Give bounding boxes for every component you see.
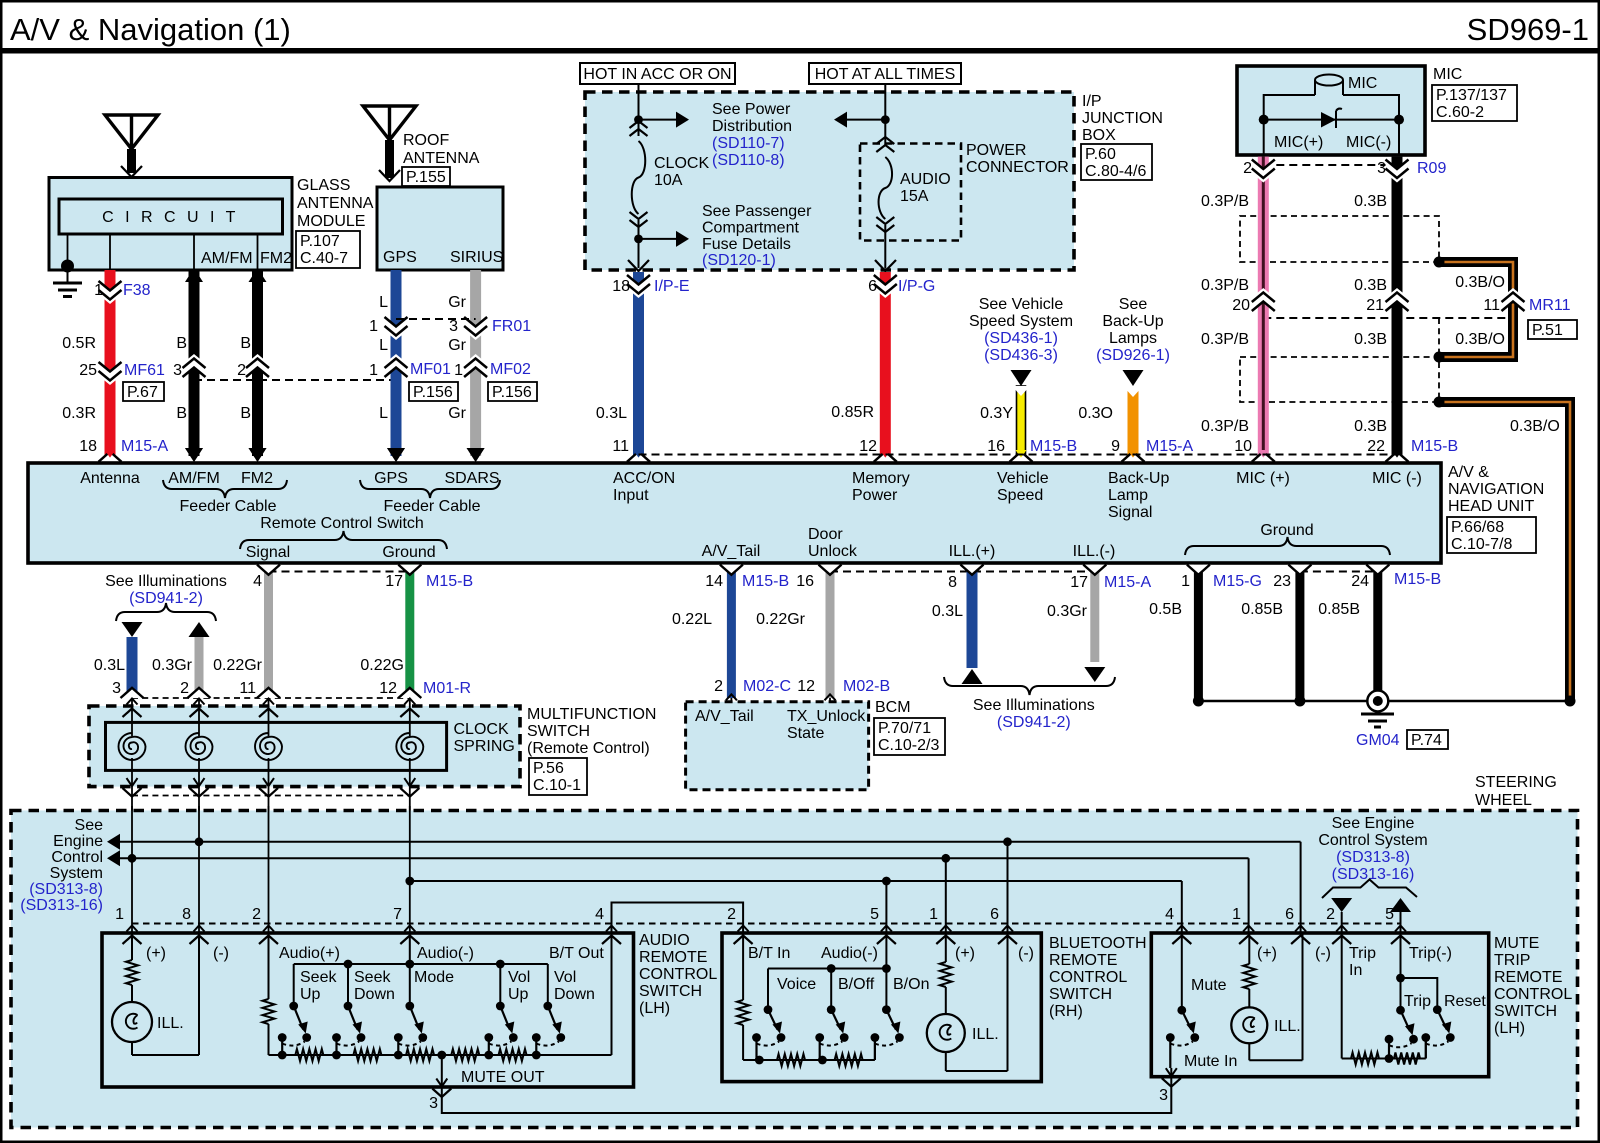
- svg-text:1: 1: [94, 282, 103, 299]
- svg-text:See Passenger: See Passenger: [702, 203, 812, 220]
- svg-text:(-): (-): [1315, 945, 1331, 962]
- svg-text:0.3L: 0.3L: [596, 405, 627, 422]
- svg-text:See Illuminations: See Illuminations: [105, 573, 227, 590]
- svg-text:0.3L: 0.3L: [932, 603, 963, 620]
- svg-text:See: See: [75, 817, 104, 834]
- svg-text:P.51: P.51: [1532, 322, 1563, 339]
- svg-text:Remote Control Switch: Remote Control Switch: [260, 515, 424, 532]
- svg-text:MUTE: MUTE: [1494, 935, 1539, 952]
- svg-text:0.5B: 0.5B: [1149, 601, 1182, 618]
- svg-text:8: 8: [948, 574, 957, 591]
- svg-text:3: 3: [173, 362, 182, 379]
- svg-text:ILL.: ILL.: [1274, 1018, 1301, 1035]
- svg-text:Down: Down: [354, 986, 395, 1003]
- svg-text:Lamp: Lamp: [1108, 487, 1148, 504]
- svg-text:0.3B: 0.3B: [1354, 277, 1387, 294]
- svg-text:11: 11: [1483, 297, 1500, 314]
- svg-text:MODULE: MODULE: [297, 213, 365, 230]
- svg-text:(+): (+): [955, 945, 975, 962]
- svg-text:P.155: P.155: [406, 169, 446, 186]
- svg-text:0.3P/B: 0.3P/B: [1201, 331, 1249, 348]
- svg-text:M01-R: M01-R: [423, 680, 471, 697]
- svg-text:P.67: P.67: [127, 384, 158, 401]
- svg-text:GLASS: GLASS: [297, 177, 350, 194]
- svg-text:3: 3: [1377, 160, 1386, 177]
- svg-text:Feeder Cable: Feeder Cable: [384, 498, 481, 515]
- svg-text:Trip(-): Trip(-): [1409, 945, 1452, 962]
- svg-text:0.3Gr: 0.3Gr: [152, 657, 193, 674]
- svg-text:0.3P/B: 0.3P/B: [1201, 418, 1249, 435]
- svg-text:2: 2: [237, 362, 246, 379]
- svg-text:AUDIO: AUDIO: [900, 171, 951, 188]
- svg-text:C.10-7/8: C.10-7/8: [1451, 536, 1512, 553]
- svg-text:6: 6: [990, 906, 999, 923]
- svg-text:Mute: Mute: [1191, 977, 1227, 994]
- svg-text:0.3B: 0.3B: [1354, 331, 1387, 348]
- svg-text:FM2: FM2: [241, 470, 273, 487]
- svg-text:CLOCK: CLOCK: [454, 721, 509, 738]
- svg-text:0.22Gr: 0.22Gr: [756, 611, 806, 628]
- svg-text:B/Off: B/Off: [838, 976, 875, 993]
- svg-text:SWITCH: SWITCH: [1049, 986, 1112, 1003]
- svg-text:0.3B/O: 0.3B/O: [1455, 331, 1505, 348]
- svg-text:SIRIUS: SIRIUS: [450, 249, 503, 266]
- svg-text:BLUETOOTH: BLUETOOTH: [1049, 935, 1147, 952]
- svg-text:1: 1: [454, 362, 463, 379]
- svg-text:Gr: Gr: [448, 294, 466, 311]
- svg-text:Fuse Details: Fuse Details: [702, 236, 791, 253]
- svg-text:Speed System: Speed System: [969, 313, 1073, 330]
- svg-text:CONTROL: CONTROL: [1494, 986, 1572, 1003]
- svg-text:Vol: Vol: [508, 969, 530, 986]
- svg-text:SWITCH: SWITCH: [527, 723, 590, 740]
- svg-text:WHEEL: WHEEL: [1475, 792, 1532, 809]
- svg-text:25: 25: [79, 362, 97, 379]
- svg-text:AUDIO: AUDIO: [639, 932, 690, 949]
- svg-text:1: 1: [929, 906, 938, 923]
- svg-text:(SD120-1): (SD120-1): [702, 252, 776, 269]
- svg-text:M15-A: M15-A: [121, 438, 168, 455]
- svg-text:7: 7: [393, 906, 402, 923]
- svg-text:23: 23: [1273, 573, 1291, 590]
- svg-text:Reset: Reset: [1444, 993, 1486, 1010]
- svg-text:FM2: FM2: [260, 250, 292, 267]
- svg-text:ILL.: ILL.: [972, 1026, 999, 1043]
- svg-text:BCM: BCM: [875, 699, 911, 716]
- svg-text:See: See: [1119, 296, 1148, 313]
- svg-text:20: 20: [1232, 297, 1250, 314]
- svg-text:0.85R: 0.85R: [831, 404, 874, 421]
- svg-text:P.70/71: P.70/71: [878, 720, 931, 737]
- svg-text:Feeder Cable: Feeder Cable: [180, 498, 277, 515]
- svg-text:B: B: [240, 335, 251, 352]
- svg-text:0.3R: 0.3R: [62, 405, 96, 422]
- svg-text:(-): (-): [1018, 945, 1034, 962]
- svg-text:Speed: Speed: [997, 487, 1043, 504]
- svg-text:Seek: Seek: [354, 969, 391, 986]
- svg-text:4: 4: [1165, 906, 1174, 923]
- svg-text:9: 9: [1111, 438, 1120, 455]
- svg-text:1: 1: [115, 906, 124, 923]
- svg-text:5: 5: [870, 906, 879, 923]
- svg-text:REMOTE: REMOTE: [1494, 969, 1562, 986]
- svg-text:GM04: GM04: [1356, 732, 1400, 749]
- svg-text:(SD313-8): (SD313-8): [1336, 849, 1410, 866]
- svg-text:(SD941-2): (SD941-2): [997, 714, 1071, 731]
- svg-text:1: 1: [369, 318, 378, 335]
- svg-text:5: 5: [1385, 906, 1394, 923]
- svg-text:(RH): (RH): [1049, 1003, 1083, 1020]
- svg-text:1: 1: [1232, 906, 1241, 923]
- svg-text:Ground: Ground: [1260, 522, 1313, 539]
- svg-text:0.22L: 0.22L: [672, 611, 712, 628]
- svg-text:B/T In: B/T In: [748, 945, 790, 962]
- svg-text:Lamps: Lamps: [1109, 330, 1157, 347]
- svg-text:(LH): (LH): [639, 1000, 670, 1017]
- svg-text:2: 2: [1326, 906, 1335, 923]
- svg-text:P.60: P.60: [1085, 146, 1116, 163]
- svg-text:0.3B/O: 0.3B/O: [1510, 418, 1560, 435]
- svg-text:MIC: MIC: [1348, 75, 1377, 92]
- svg-text:MIC(+): MIC(+): [1274, 134, 1323, 151]
- svg-text:M15-A: M15-A: [1104, 574, 1151, 591]
- svg-text:6: 6: [868, 278, 877, 295]
- svg-text:8: 8: [182, 906, 191, 923]
- svg-text:Up: Up: [508, 986, 529, 1003]
- svg-text:MIC (-): MIC (-): [1372, 470, 1422, 487]
- svg-text:MIC(-): MIC(-): [1346, 134, 1391, 151]
- svg-text:STEERING: STEERING: [1475, 774, 1557, 791]
- svg-text:11: 11: [612, 438, 629, 455]
- svg-text:(+): (+): [1257, 945, 1277, 962]
- svg-text:12: 12: [379, 680, 397, 697]
- svg-text:(Remote Control): (Remote Control): [527, 740, 650, 757]
- svg-text:17: 17: [385, 573, 403, 590]
- svg-text:ACC/ON: ACC/ON: [613, 470, 675, 487]
- svg-text:M15-B: M15-B: [1411, 438, 1458, 455]
- svg-text:C I R C U I T: C I R C U I T: [102, 209, 239, 226]
- svg-text:I/P: I/P: [1082, 93, 1102, 110]
- svg-text:M15-A: M15-A: [1146, 438, 1193, 455]
- svg-text:POWER: POWER: [966, 142, 1026, 159]
- svg-text:14: 14: [705, 573, 723, 590]
- svg-text:REMOTE: REMOTE: [1049, 952, 1117, 969]
- svg-text:24: 24: [1351, 573, 1369, 590]
- svg-text:MULTIFUNCTION: MULTIFUNCTION: [527, 706, 656, 723]
- svg-text:3: 3: [112, 680, 121, 697]
- svg-text:3: 3: [1159, 1087, 1168, 1104]
- svg-text:Down: Down: [554, 986, 595, 1003]
- svg-text:16: 16: [796, 573, 814, 590]
- svg-text:SD969-1: SD969-1: [1467, 12, 1589, 47]
- svg-text:GPS: GPS: [383, 249, 417, 266]
- svg-text:HEAD UNIT: HEAD UNIT: [1448, 498, 1534, 515]
- svg-text:ROOF: ROOF: [403, 132, 449, 149]
- svg-text:C.80-4/6: C.80-4/6: [1085, 163, 1146, 180]
- svg-text:Antenna: Antenna: [80, 470, 140, 487]
- svg-text:M15-B: M15-B: [1394, 571, 1441, 588]
- svg-text:10A: 10A: [654, 172, 683, 189]
- svg-text:A/V & Navigation (1): A/V & Navigation (1): [10, 12, 291, 47]
- svg-text:BOX: BOX: [1082, 127, 1116, 144]
- svg-text:P.156: P.156: [492, 384, 532, 401]
- svg-text:Distribution: Distribution: [712, 118, 792, 135]
- svg-text:3: 3: [429, 1095, 438, 1112]
- svg-text:ILL.(-): ILL.(-): [1073, 543, 1116, 560]
- svg-text:1: 1: [1181, 573, 1190, 590]
- svg-text:P.107: P.107: [300, 233, 340, 250]
- svg-text:JUNCTION: JUNCTION: [1082, 110, 1163, 127]
- svg-text:Audio(+): Audio(+): [279, 945, 340, 962]
- svg-text:SDARS: SDARS: [444, 470, 499, 487]
- svg-text:2: 2: [180, 680, 189, 697]
- svg-text:Back-Up: Back-Up: [1102, 313, 1163, 330]
- svg-text:TRIP: TRIP: [1494, 952, 1530, 969]
- svg-text:Engine: Engine: [53, 833, 103, 850]
- svg-text:(SD313-16): (SD313-16): [1332, 866, 1415, 883]
- svg-text:AM/FM: AM/FM: [168, 470, 220, 487]
- svg-text:Signal: Signal: [246, 544, 290, 561]
- svg-text:Seek: Seek: [300, 969, 337, 986]
- svg-text:See Vehicle: See Vehicle: [979, 296, 1064, 313]
- svg-text:(-): (-): [213, 945, 229, 962]
- svg-text:(LH): (LH): [1494, 1020, 1525, 1037]
- svg-text:Trip: Trip: [1404, 993, 1431, 1010]
- svg-text:AM/FM: AM/FM: [201, 250, 253, 267]
- svg-text:L: L: [379, 405, 388, 422]
- svg-text:0.3P/B: 0.3P/B: [1201, 277, 1249, 294]
- svg-text:CONTROL: CONTROL: [1049, 969, 1127, 986]
- svg-text:(SD313-8): (SD313-8): [29, 881, 103, 898]
- svg-text:L: L: [379, 337, 388, 354]
- svg-text:B: B: [176, 405, 187, 422]
- svg-text:See Power: See Power: [712, 101, 791, 118]
- svg-text:Voice: Voice: [777, 976, 816, 993]
- svg-text:In: In: [1349, 962, 1362, 979]
- svg-text:A/V &: A/V &: [1448, 464, 1489, 481]
- svg-text:Control System: Control System: [1318, 832, 1427, 849]
- svg-text:0.3B: 0.3B: [1354, 418, 1387, 435]
- svg-text:B: B: [176, 335, 187, 352]
- svg-text:0.22Gr: 0.22Gr: [213, 657, 263, 674]
- svg-text:Input: Input: [613, 487, 649, 504]
- svg-text:Audio(-): Audio(-): [821, 945, 878, 962]
- svg-text:0.3P/B: 0.3P/B: [1201, 193, 1249, 210]
- svg-text:Gr: Gr: [448, 405, 466, 422]
- svg-text:CONTROL: CONTROL: [639, 966, 717, 983]
- svg-text:2: 2: [1243, 160, 1252, 177]
- svg-text:2: 2: [727, 906, 736, 923]
- svg-text:MF02: MF02: [490, 361, 531, 378]
- svg-text:Vehicle: Vehicle: [997, 470, 1049, 487]
- svg-text:(SD313-16): (SD313-16): [20, 897, 103, 914]
- svg-text:MR11: MR11: [1529, 297, 1571, 314]
- svg-text:4: 4: [595, 906, 604, 923]
- svg-text:15A: 15A: [900, 188, 929, 205]
- svg-text:P.56: P.56: [533, 760, 564, 777]
- svg-text:B/On: B/On: [893, 976, 929, 993]
- svg-text:A/V_Tail: A/V_Tail: [695, 708, 754, 725]
- svg-text:0.3B/O: 0.3B/O: [1455, 274, 1505, 291]
- svg-text:MF01: MF01: [410, 361, 451, 378]
- svg-text:ILL.: ILL.: [157, 1015, 184, 1032]
- svg-text:I/P-E: I/P-E: [654, 278, 690, 295]
- svg-text:FR01: FR01: [492, 318, 531, 335]
- svg-text:18: 18: [79, 438, 97, 455]
- svg-text:16: 16: [987, 438, 1005, 455]
- svg-text:(SD926-1): (SD926-1): [1096, 347, 1170, 364]
- svg-text:Gr: Gr: [448, 337, 466, 354]
- svg-text:0.5R: 0.5R: [62, 335, 96, 352]
- svg-text:System: System: [50, 865, 103, 882]
- svg-text:17: 17: [1070, 574, 1088, 591]
- svg-text:Memory: Memory: [852, 470, 910, 487]
- svg-text:TX_Unlock: TX_Unlock: [787, 708, 866, 725]
- svg-text:0.3Y: 0.3Y: [980, 405, 1013, 422]
- svg-text:CONNECTOR: CONNECTOR: [966, 159, 1069, 176]
- svg-text:See Engine: See Engine: [1332, 815, 1415, 832]
- svg-text:NAVIGATION: NAVIGATION: [1448, 481, 1544, 498]
- svg-text:C.60-2: C.60-2: [1436, 104, 1484, 121]
- svg-text:(SD436-3): (SD436-3): [984, 347, 1058, 364]
- svg-text:Power: Power: [852, 487, 898, 504]
- svg-text:2: 2: [252, 906, 261, 923]
- svg-text:REMOTE: REMOTE: [639, 949, 707, 966]
- svg-text:2: 2: [714, 678, 723, 695]
- svg-text:MIC: MIC: [1433, 66, 1462, 83]
- svg-text:Trip: Trip: [1349, 945, 1376, 962]
- svg-text:B: B: [240, 405, 251, 422]
- svg-text:Up: Up: [300, 986, 321, 1003]
- svg-text:M15-G: M15-G: [1213, 573, 1262, 590]
- svg-text:I/P-G: I/P-G: [898, 278, 935, 295]
- svg-text:0.3L: 0.3L: [94, 657, 125, 674]
- svg-text:(SD436-1): (SD436-1): [984, 330, 1058, 347]
- svg-text:P.66/68: P.66/68: [1451, 519, 1504, 536]
- svg-text:11: 11: [239, 680, 256, 697]
- svg-text:4: 4: [253, 573, 262, 590]
- svg-text:22: 22: [1367, 438, 1385, 455]
- svg-text:HOT IN ACC OR ON: HOT IN ACC OR ON: [583, 66, 731, 83]
- svg-text:12: 12: [797, 678, 815, 695]
- svg-text:10: 10: [1234, 438, 1252, 455]
- svg-text:Compartment: Compartment: [702, 220, 799, 237]
- svg-text:6: 6: [1285, 906, 1294, 923]
- svg-text:A/V_Tail: A/V_Tail: [702, 543, 761, 560]
- svg-text:C.10-2/3: C.10-2/3: [878, 737, 939, 754]
- svg-text:Mute In: Mute In: [1184, 1053, 1237, 1070]
- svg-text:12: 12: [859, 438, 877, 455]
- svg-text:ANTENNA: ANTENNA: [297, 195, 374, 212]
- svg-text:P.74: P.74: [1411, 732, 1442, 749]
- svg-text:P.156: P.156: [413, 384, 453, 401]
- svg-text:SWITCH: SWITCH: [639, 983, 702, 1000]
- svg-text:C.40-7: C.40-7: [300, 250, 348, 267]
- svg-text:3: 3: [449, 318, 458, 335]
- svg-text:0.3Gr: 0.3Gr: [1047, 603, 1088, 620]
- svg-text:Signal: Signal: [1108, 504, 1152, 521]
- svg-text:M15-B: M15-B: [742, 573, 789, 590]
- svg-text:Back-Up: Back-Up: [1108, 470, 1169, 487]
- svg-text:0.3O: 0.3O: [1078, 405, 1113, 422]
- svg-text:M02-B: M02-B: [843, 678, 890, 695]
- svg-text:ILL.(+): ILL.(+): [949, 543, 996, 560]
- svg-text:GPS: GPS: [374, 470, 408, 487]
- svg-text:State: State: [787, 725, 824, 742]
- svg-text:18: 18: [612, 278, 630, 295]
- svg-text:M15-B: M15-B: [1030, 438, 1077, 455]
- svg-text:ANTENNA: ANTENNA: [403, 150, 480, 167]
- svg-text:(+): (+): [146, 945, 166, 962]
- svg-text:B/T Out: B/T Out: [549, 945, 604, 962]
- svg-text:SWITCH: SWITCH: [1494, 1003, 1557, 1020]
- svg-text:P.137/137: P.137/137: [1436, 87, 1507, 104]
- svg-text:0.3B: 0.3B: [1354, 193, 1387, 210]
- svg-text:Control: Control: [51, 849, 103, 866]
- svg-text:Ground: Ground: [382, 544, 435, 561]
- svg-text:MF61: MF61: [124, 362, 165, 379]
- svg-text:Unlock: Unlock: [808, 543, 858, 560]
- svg-text:(SD110-7): (SD110-7): [712, 135, 785, 152]
- svg-text:Door: Door: [808, 526, 843, 543]
- svg-text:MIC (+): MIC (+): [1236, 470, 1290, 487]
- svg-text:0.85B: 0.85B: [1318, 601, 1360, 618]
- svg-text:F38: F38: [123, 282, 151, 299]
- svg-text:R09: R09: [1417, 160, 1446, 177]
- svg-text:See Illuminations: See Illuminations: [973, 697, 1095, 714]
- svg-text:Audio(-): Audio(-): [417, 945, 474, 962]
- svg-text:(SD110-8): (SD110-8): [712, 152, 785, 169]
- svg-text:L: L: [379, 294, 388, 311]
- svg-text:M15-B: M15-B: [426, 573, 473, 590]
- svg-text:SPRING: SPRING: [454, 738, 515, 755]
- svg-text:MUTE OUT: MUTE OUT: [461, 1069, 545, 1086]
- svg-text:HOT AT ALL TIMES: HOT AT ALL TIMES: [815, 66, 956, 83]
- svg-text:C.10-1: C.10-1: [533, 777, 581, 794]
- svg-text:0.85B: 0.85B: [1241, 601, 1283, 618]
- svg-text:1: 1: [369, 362, 378, 379]
- svg-text:M02-C: M02-C: [743, 678, 791, 695]
- svg-text:CLOCK: CLOCK: [654, 155, 709, 172]
- svg-text:21: 21: [1366, 297, 1384, 314]
- svg-text:Mode: Mode: [414, 969, 454, 986]
- svg-text:0.22G: 0.22G: [360, 657, 404, 674]
- svg-text:Vol: Vol: [554, 969, 576, 986]
